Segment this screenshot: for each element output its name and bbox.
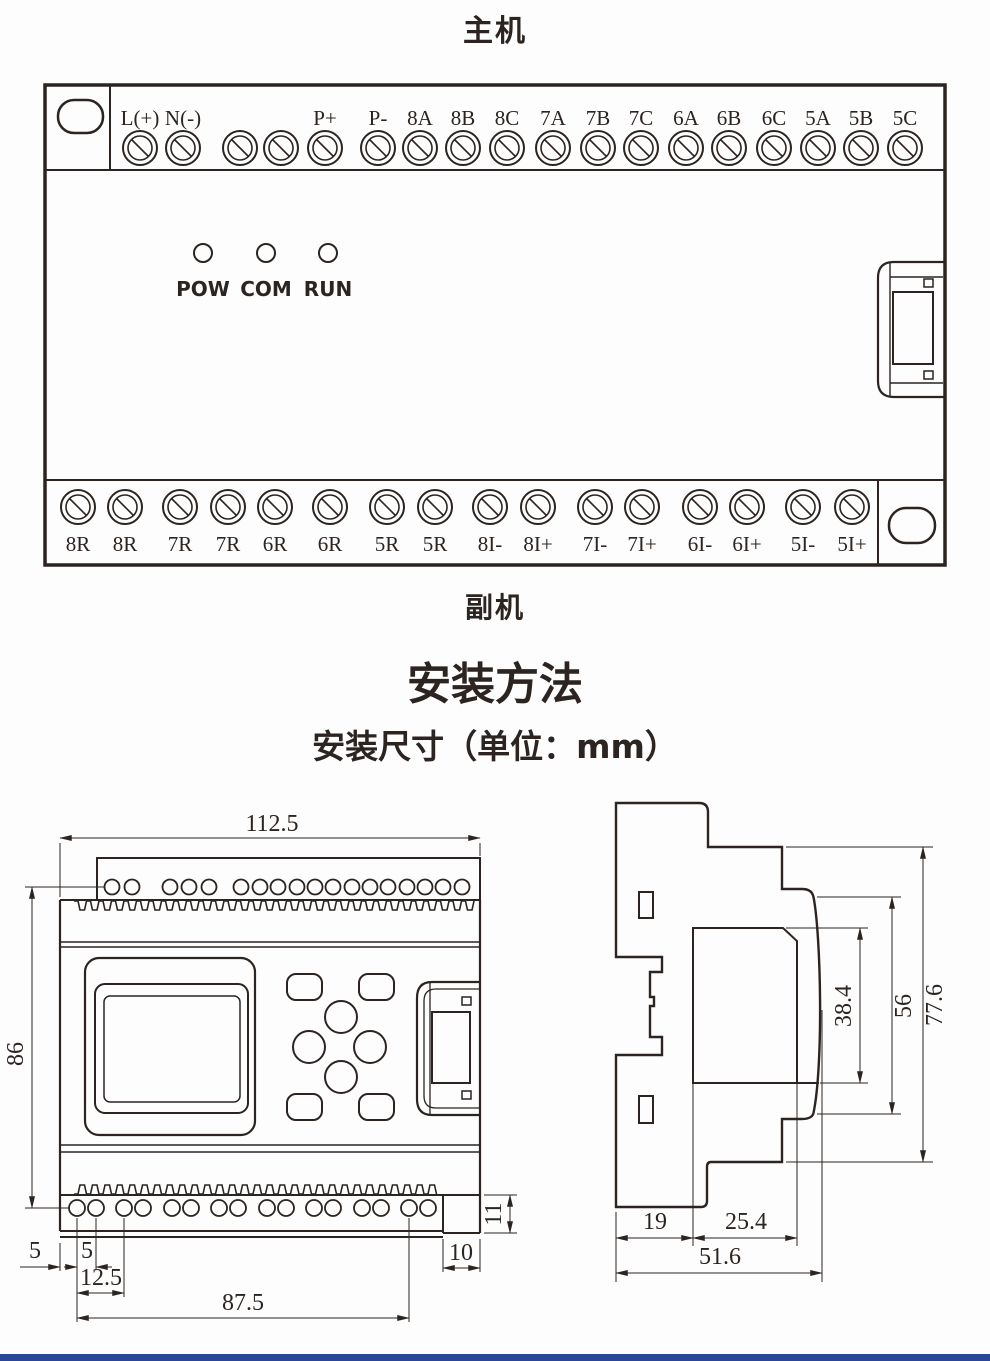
terminal-screw [536,131,570,165]
svg-text:10: 10 [449,1240,473,1266]
svg-text:51.6: 51.6 [699,1244,741,1270]
bottom-terminal-row: 8R8R7R7R6R6R5R5R8I-8I+7I-7I+6I-6I+5I-5I+ [61,490,869,556]
terminal-label: 6I- [688,532,713,556]
terminal-screw [844,131,878,165]
svg-text:5: 5 [81,1238,93,1264]
terminal-screw [669,131,703,165]
terminal-label: 6R [263,532,288,556]
terminal-hole [436,880,451,895]
terminal-hole [326,880,341,895]
led-label: RUN [304,277,352,301]
install-dims-heading: 安装尺寸（单位：mm） [0,720,990,768]
dimension-depths: 19 25.4 51.6 [616,1010,822,1282]
terminal-screw [446,131,480,165]
dimension-hole-cluster: 5 5 12.5 87.5 [20,1218,409,1322]
terminal-label: P- [369,106,388,130]
top-terminal-row: L(+)N(-)P+P-8A8B8C7A7B7C6A6B6C5A5B5C [121,106,922,165]
bottom-right-tab [443,1195,480,1233]
terminal-hole [202,880,217,895]
terminal-hole [164,1200,180,1216]
terminal-label: 7I- [583,532,608,556]
terminal-screw [581,131,615,165]
led-run [319,244,337,262]
terminal-hole [259,1200,275,1216]
terminal-screw [418,490,452,524]
front-view-drawing: 112.5 86 5 5 12.5 87.5 10 11 [0,790,540,1335]
svg-text:19: 19 [643,1209,667,1235]
terminal-screw [757,131,791,165]
terminal-screw [361,131,395,165]
terminal-hole [373,1200,389,1216]
svg-text:38.4: 38.4 [831,985,857,1027]
terminal-hole [400,880,415,895]
terminal-screw [473,490,507,524]
terminal-label: P+ [313,106,337,130]
terminal-label: 5I- [791,532,816,556]
terminal-label: 7R [216,532,241,556]
side-profile [616,803,820,1207]
terminal-hole [183,1200,199,1216]
terminal-hole [182,880,197,895]
terminal-screw [683,490,717,524]
main-unit-drawing: L(+)N(-)P+P-8A8B8C7A7B7C6A6B6C5A5B5C 8R8… [40,80,950,570]
connector-notch-top [924,279,933,287]
connector-notch-bottom [924,371,933,379]
terminal-hole [345,880,360,895]
terminal-screw [624,131,658,165]
terminal-screw [712,131,746,165]
terminal-screw [835,490,869,524]
terminal-screw [801,131,835,165]
terminal-hole [271,880,286,895]
terminal-hole [455,880,470,895]
key-down [325,1061,357,1093]
terminal-label: 7I+ [627,532,656,556]
terminal-label: 6C [762,106,787,130]
terminal-label: 8C [495,106,520,130]
dimension-panel-height: 38.4 [786,928,868,1083]
terminal-screw [370,490,404,524]
terminal-screw [308,131,342,165]
top-terminal-holes [105,880,470,895]
terminal-screw [786,490,820,524]
din-clip-hole-bottom [639,1096,653,1123]
key-top-left [287,974,322,1000]
terminal-screw [61,490,95,524]
terminal-hole [306,1200,322,1216]
terminal-screw [730,490,764,524]
bottom-terminal-holes [69,1200,436,1216]
led-com [257,244,275,262]
key-bottom-right [359,1094,394,1120]
svg-text:56: 56 [891,994,917,1018]
terminal-screw [108,490,142,524]
svg-text:86: 86 [3,1042,29,1066]
terminal-hole [234,880,249,895]
key-top-right [359,974,394,1000]
led-label: COM [240,277,292,301]
svg-text:12.5: 12.5 [80,1265,122,1291]
terminal-hole [69,1200,85,1216]
terminal-label: 8I- [478,532,503,556]
footer-accent-bar [0,1354,990,1361]
display-window [85,958,255,1135]
dimension-height: 86 [3,887,104,1208]
terminal-screw [313,490,347,524]
terminal-screw [264,131,298,165]
terminal-screw [211,490,245,524]
terminal-label: 6R [318,532,343,556]
din-clip-hole-top [639,892,653,918]
expansion-connector [878,262,945,397]
terminal-label: 8A [407,106,434,130]
terminal-label: 6B [717,106,742,130]
top-left-mount-slot [58,100,103,133]
terminal-label: 6I+ [732,532,761,556]
terminal-screw [625,490,659,524]
terminal-hole [211,1200,227,1216]
terminal-label: 8R [66,532,91,556]
terminal-screw [163,490,197,524]
terminal-label: 5A [805,106,832,130]
svg-text:77.6: 77.6 [922,984,948,1026]
terminal-label: 5R [375,532,400,556]
sub-unit-title: 副机 [0,586,990,626]
terminal-label: 8I+ [523,532,552,556]
side-view-drawing: 38.4 56 77.6 19 25.4 51.6 [580,790,980,1335]
terminal-label: 5B [849,106,874,130]
dimension-total-height: 77.6 [786,847,948,1162]
terminal-hole [354,1200,370,1216]
terminal-label: 7A [540,106,567,130]
terminal-screw [888,131,922,165]
svg-text:87.5: 87.5 [222,1290,264,1316]
terminal-label: N(-) [165,106,201,130]
terminal-hole [88,1200,104,1216]
terminal-screw [521,490,555,524]
svg-text:11: 11 [481,1202,507,1225]
status-led-group: POWCOMRUN [176,244,352,301]
terminal-label: 7B [586,106,611,130]
terminal-hole [363,880,378,895]
front-expansion-connector [417,982,481,1115]
key-right [354,1031,386,1063]
terminal-screw [166,131,200,165]
terminal-screw [123,131,157,165]
svg-text:25.4: 25.4 [725,1209,767,1235]
terminal-hole [278,1200,294,1216]
terminal-screw [490,131,524,165]
terminal-hole [308,880,323,895]
terminal-hole [125,880,140,895]
terminal-hole [381,880,396,895]
install-method-heading: 安装方法 [0,648,990,712]
terminal-hole [163,880,178,895]
terminal-label: 8B [451,106,476,130]
terminal-hole [230,1200,246,1216]
key-left [293,1031,325,1063]
terminal-hole [116,1200,132,1216]
terminal-label: 5R [423,532,448,556]
terminal-hole [253,880,268,895]
side-panel [693,928,797,1083]
terminal-screw [223,131,257,165]
terminal-label: 8R [113,532,138,556]
led-pow [194,244,212,262]
svg-text:5: 5 [29,1238,41,1264]
bottom-right-mount-slot [889,508,935,543]
terminal-hole [420,1200,436,1216]
terminal-hole [325,1200,341,1216]
key-up [325,1001,357,1033]
terminal-label: 7C [629,106,654,130]
terminal-hole [135,1200,151,1216]
main-unit-title: 主机 [0,6,990,50]
dimension-width: 112.5 [60,811,480,897]
terminal-hole [105,880,120,895]
terminal-screw [258,490,292,524]
svg-text:112.5: 112.5 [245,811,298,837]
terminal-hole [418,880,433,895]
terminal-label: L(+) [121,106,160,130]
terminal-hole [290,880,305,895]
led-label: POW [176,277,230,301]
terminal-label: 7R [168,532,193,556]
terminal-label: 6A [673,106,700,130]
keypad [287,974,394,1120]
terminal-label: 5I+ [837,532,866,556]
terminal-hole [401,1200,417,1216]
key-bottom-left [287,1094,322,1120]
terminal-screw [578,490,612,524]
terminal-label: 5C [893,106,918,130]
terminal-screw [403,131,437,165]
